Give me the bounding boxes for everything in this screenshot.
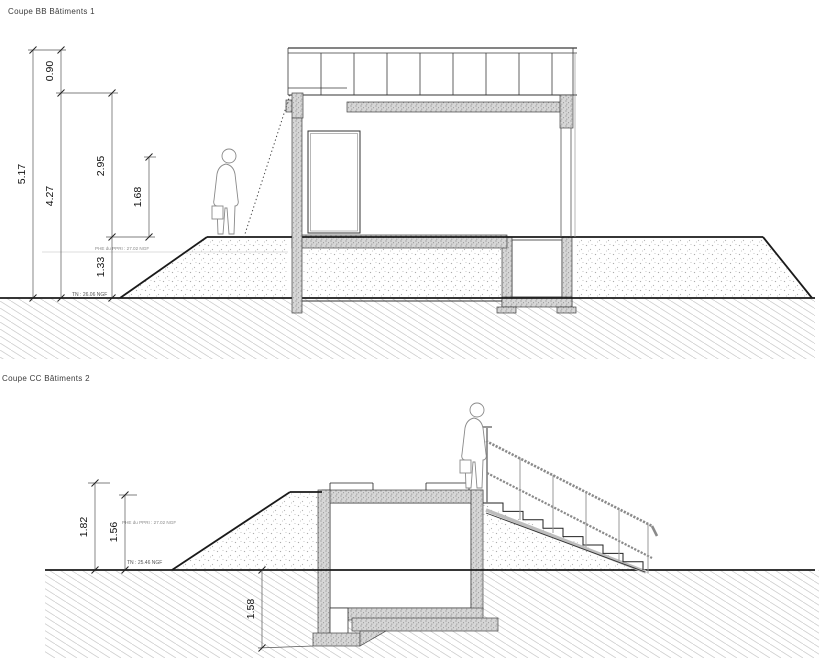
flood-level-label: PHE du PPRI : 27.02 NGF bbox=[95, 246, 149, 251]
sump-pit bbox=[330, 608, 348, 634]
ramp-dotted-line bbox=[244, 95, 290, 237]
left-wall bbox=[292, 118, 302, 313]
roof-curbs bbox=[330, 483, 469, 490]
dim-inner: 1.68 bbox=[132, 187, 144, 208]
parapet bbox=[292, 93, 303, 118]
buried-structure bbox=[313, 483, 498, 646]
dim-overall: 1.82 bbox=[78, 517, 90, 538]
dim-upper: 2.95 bbox=[95, 156, 107, 177]
top-slab bbox=[322, 490, 483, 503]
dim-overall: 5.17 bbox=[16, 164, 28, 185]
dim-railing: 0.90 bbox=[44, 61, 56, 82]
dimension-lines bbox=[28, 50, 156, 298]
architectural-drawing-sheet: Coupe BB Bâtiments 1 bbox=[0, 0, 819, 662]
roof-beam bbox=[560, 95, 573, 128]
right-wall bbox=[471, 490, 483, 610]
drawing-title: Coupe BB Bâtiments 1 bbox=[8, 7, 95, 16]
left-wall bbox=[318, 490, 330, 635]
dim-depth: 1.58 bbox=[245, 599, 257, 620]
base-slab bbox=[313, 633, 360, 646]
interior-door bbox=[308, 131, 360, 233]
drawing-title: Coupe CC Bâtiments 2 bbox=[2, 374, 90, 383]
person-figure bbox=[212, 149, 238, 234]
dimension-ticks bbox=[30, 47, 153, 302]
dim-flood: 1.56 bbox=[108, 522, 120, 543]
person-figure bbox=[460, 403, 486, 488]
dim-embankment: 1.33 bbox=[95, 257, 107, 278]
flood-level-label: PHE du PPRI : 27.02 NGF bbox=[122, 520, 176, 525]
roof-slab bbox=[347, 102, 560, 112]
coupe-cc-drawing: Coupe CC Bâtiments 2 bbox=[2, 374, 819, 658]
coupe-bb-drawing: Coupe BB Bâtiments 1 bbox=[0, 7, 815, 359]
footing bbox=[352, 618, 498, 631]
sections-canvas: Coupe BB Bâtiments 1 bbox=[0, 0, 819, 662]
foundation-pit bbox=[497, 237, 576, 313]
terrain-level-label: TN : 25.46 NGF bbox=[127, 560, 162, 566]
subsoil-hatch bbox=[0, 298, 815, 359]
parapet-notch bbox=[286, 100, 292, 112]
roof-railing bbox=[288, 48, 577, 95]
dim-wall-to-ground: 4.27 bbox=[44, 186, 56, 207]
terrain-level-label: TN : 26.06 NGF bbox=[72, 292, 107, 298]
